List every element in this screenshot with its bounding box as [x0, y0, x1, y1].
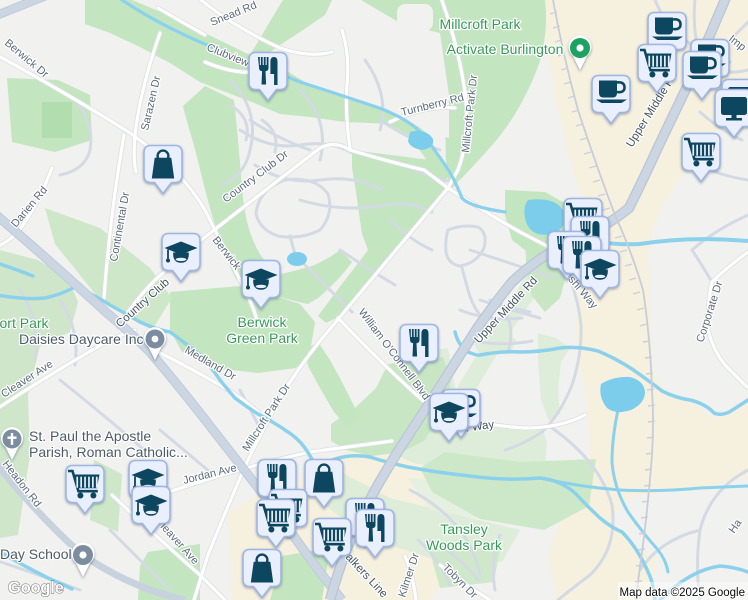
svg-text:Daisies Daycare Inc: Daisies Daycare Inc — [19, 331, 144, 347]
svg-text:Activate Burlington: Activate Burlington — [447, 41, 564, 57]
svg-text:Woods Park: Woods Park — [426, 537, 503, 553]
svg-text:Google: Google — [8, 579, 64, 597]
svg-text:Millcroft Park: Millcroft Park — [440, 16, 522, 32]
svg-text:Day School: Day School — [0, 546, 72, 562]
svg-text:Green Park: Green Park — [226, 330, 299, 346]
svg-text:Map data ©2025 Google: Map data ©2025 Google — [620, 587, 745, 599]
svg-text:Berwick: Berwick — [237, 314, 287, 330]
svg-text:Tansley: Tansley — [440, 521, 487, 537]
svg-text:ort Park: ort Park — [0, 315, 50, 331]
svg-text:Parish, Roman Catholic...: Parish, Roman Catholic... — [29, 444, 188, 460]
svg-text:St. Paul the Apostle: St. Paul the Apostle — [29, 428, 151, 444]
